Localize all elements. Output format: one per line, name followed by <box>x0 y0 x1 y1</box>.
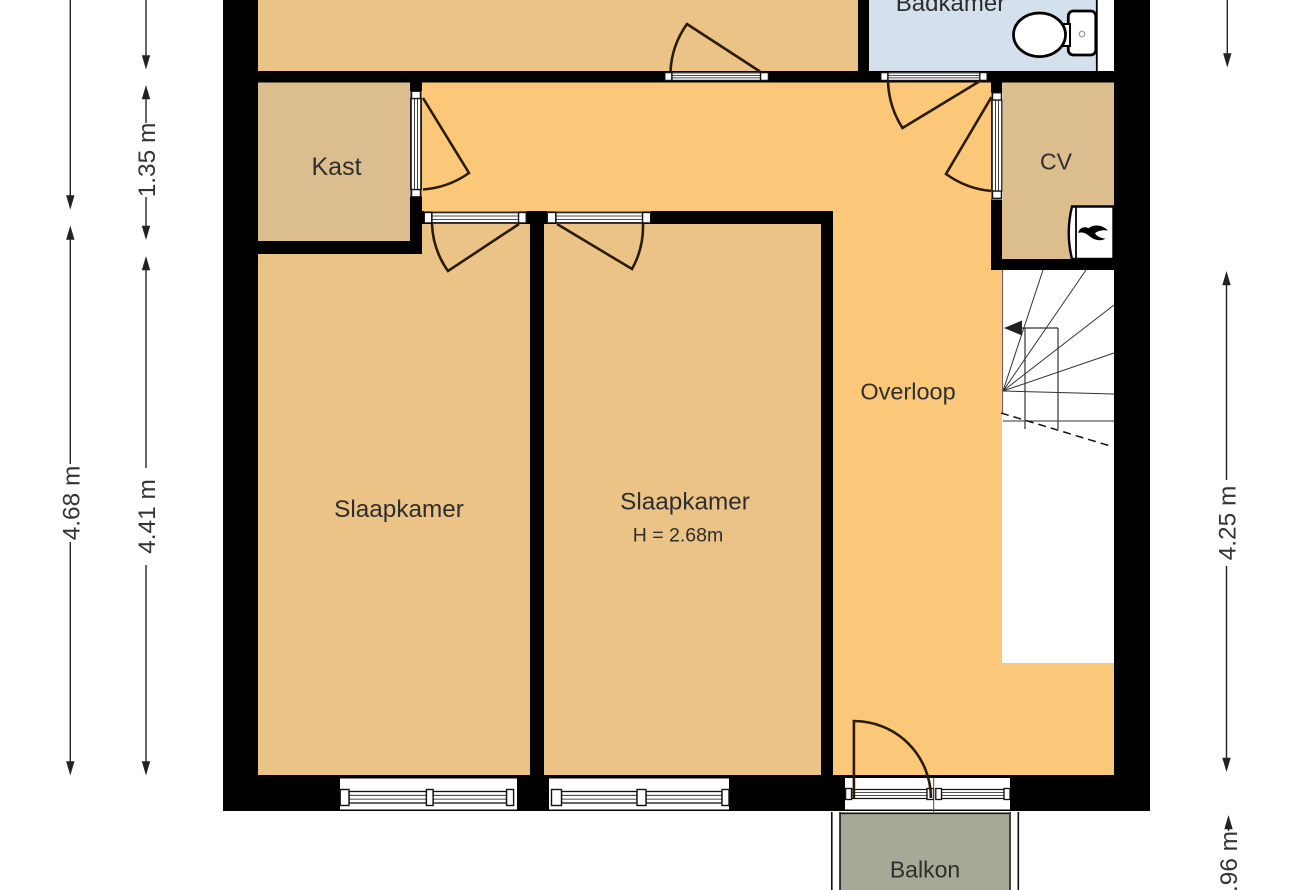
svg-text:Overloop: Overloop <box>860 379 955 405</box>
svg-text:Balkon: Balkon <box>890 857 960 883</box>
svg-text:Slaapkamer: Slaapkamer <box>334 496 464 523</box>
svg-text:4.41 m: 4.41 m <box>134 479 161 554</box>
svg-text:4.68 m: 4.68 m <box>58 466 85 541</box>
svg-text:H = 2.68m: H = 2.68m <box>633 525 724 547</box>
svg-text:Kast: Kast <box>311 153 361 181</box>
svg-text:.96 m: .96 m <box>1216 831 1243 890</box>
svg-text:Slaapkamer: Slaapkamer <box>620 489 750 516</box>
svg-text:4.25 m: 4.25 m <box>1215 486 1242 561</box>
svg-text:1.35 m: 1.35 m <box>134 123 161 198</box>
svg-text:Badkamer: Badkamer <box>896 0 1005 17</box>
svg-text:CV: CV <box>1040 149 1073 175</box>
